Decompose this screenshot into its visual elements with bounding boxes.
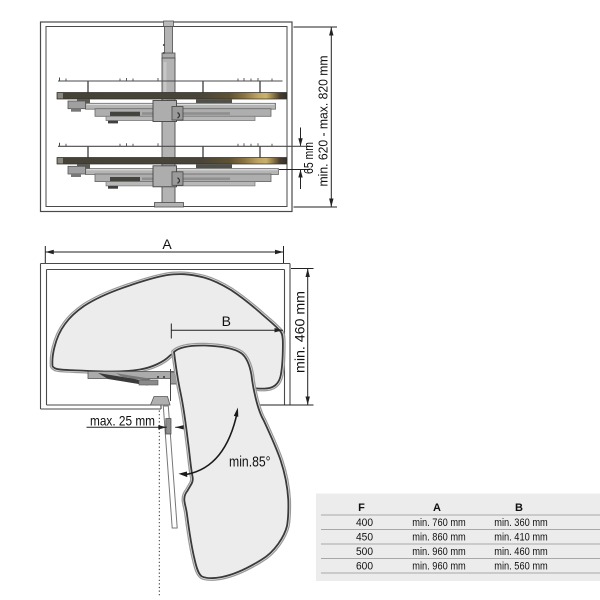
svg-text:A: A — [162, 236, 172, 252]
svg-text:max. 25 mm: max. 25 mm — [90, 412, 155, 428]
svg-text:min. 760 mm: min. 760 mm — [412, 517, 466, 529]
svg-text:450: 450 — [356, 532, 373, 544]
svg-text:A: A — [433, 502, 441, 514]
svg-text:65 mm: 65 mm — [302, 142, 316, 174]
svg-text:min. 960 mm: min. 960 mm — [412, 561, 466, 573]
svg-text:B: B — [515, 502, 523, 514]
svg-text:600: 600 — [356, 561, 373, 573]
svg-text:400: 400 — [356, 517, 373, 529]
svg-text:min. 460 mm: min. 460 mm — [291, 291, 307, 373]
svg-text:min. 460 mm: min. 460 mm — [494, 546, 548, 558]
svg-text:min.85°: min.85° — [229, 455, 271, 471]
svg-text:min. 560 mm: min. 560 mm — [494, 561, 548, 573]
svg-text:500: 500 — [356, 546, 373, 558]
svg-text:min. 960 mm: min. 960 mm — [412, 546, 466, 558]
svg-text:min. 360 mm: min. 360 mm — [494, 517, 548, 529]
svg-text:min. 860 mm: min. 860 mm — [412, 532, 466, 544]
svg-text:min. 410 mm: min. 410 mm — [494, 532, 548, 544]
svg-text:min. 620 - max. 820 mm: min. 620 - max. 820 mm — [316, 56, 331, 187]
svg-text:B: B — [222, 313, 231, 329]
svg-text:F: F — [358, 502, 365, 514]
